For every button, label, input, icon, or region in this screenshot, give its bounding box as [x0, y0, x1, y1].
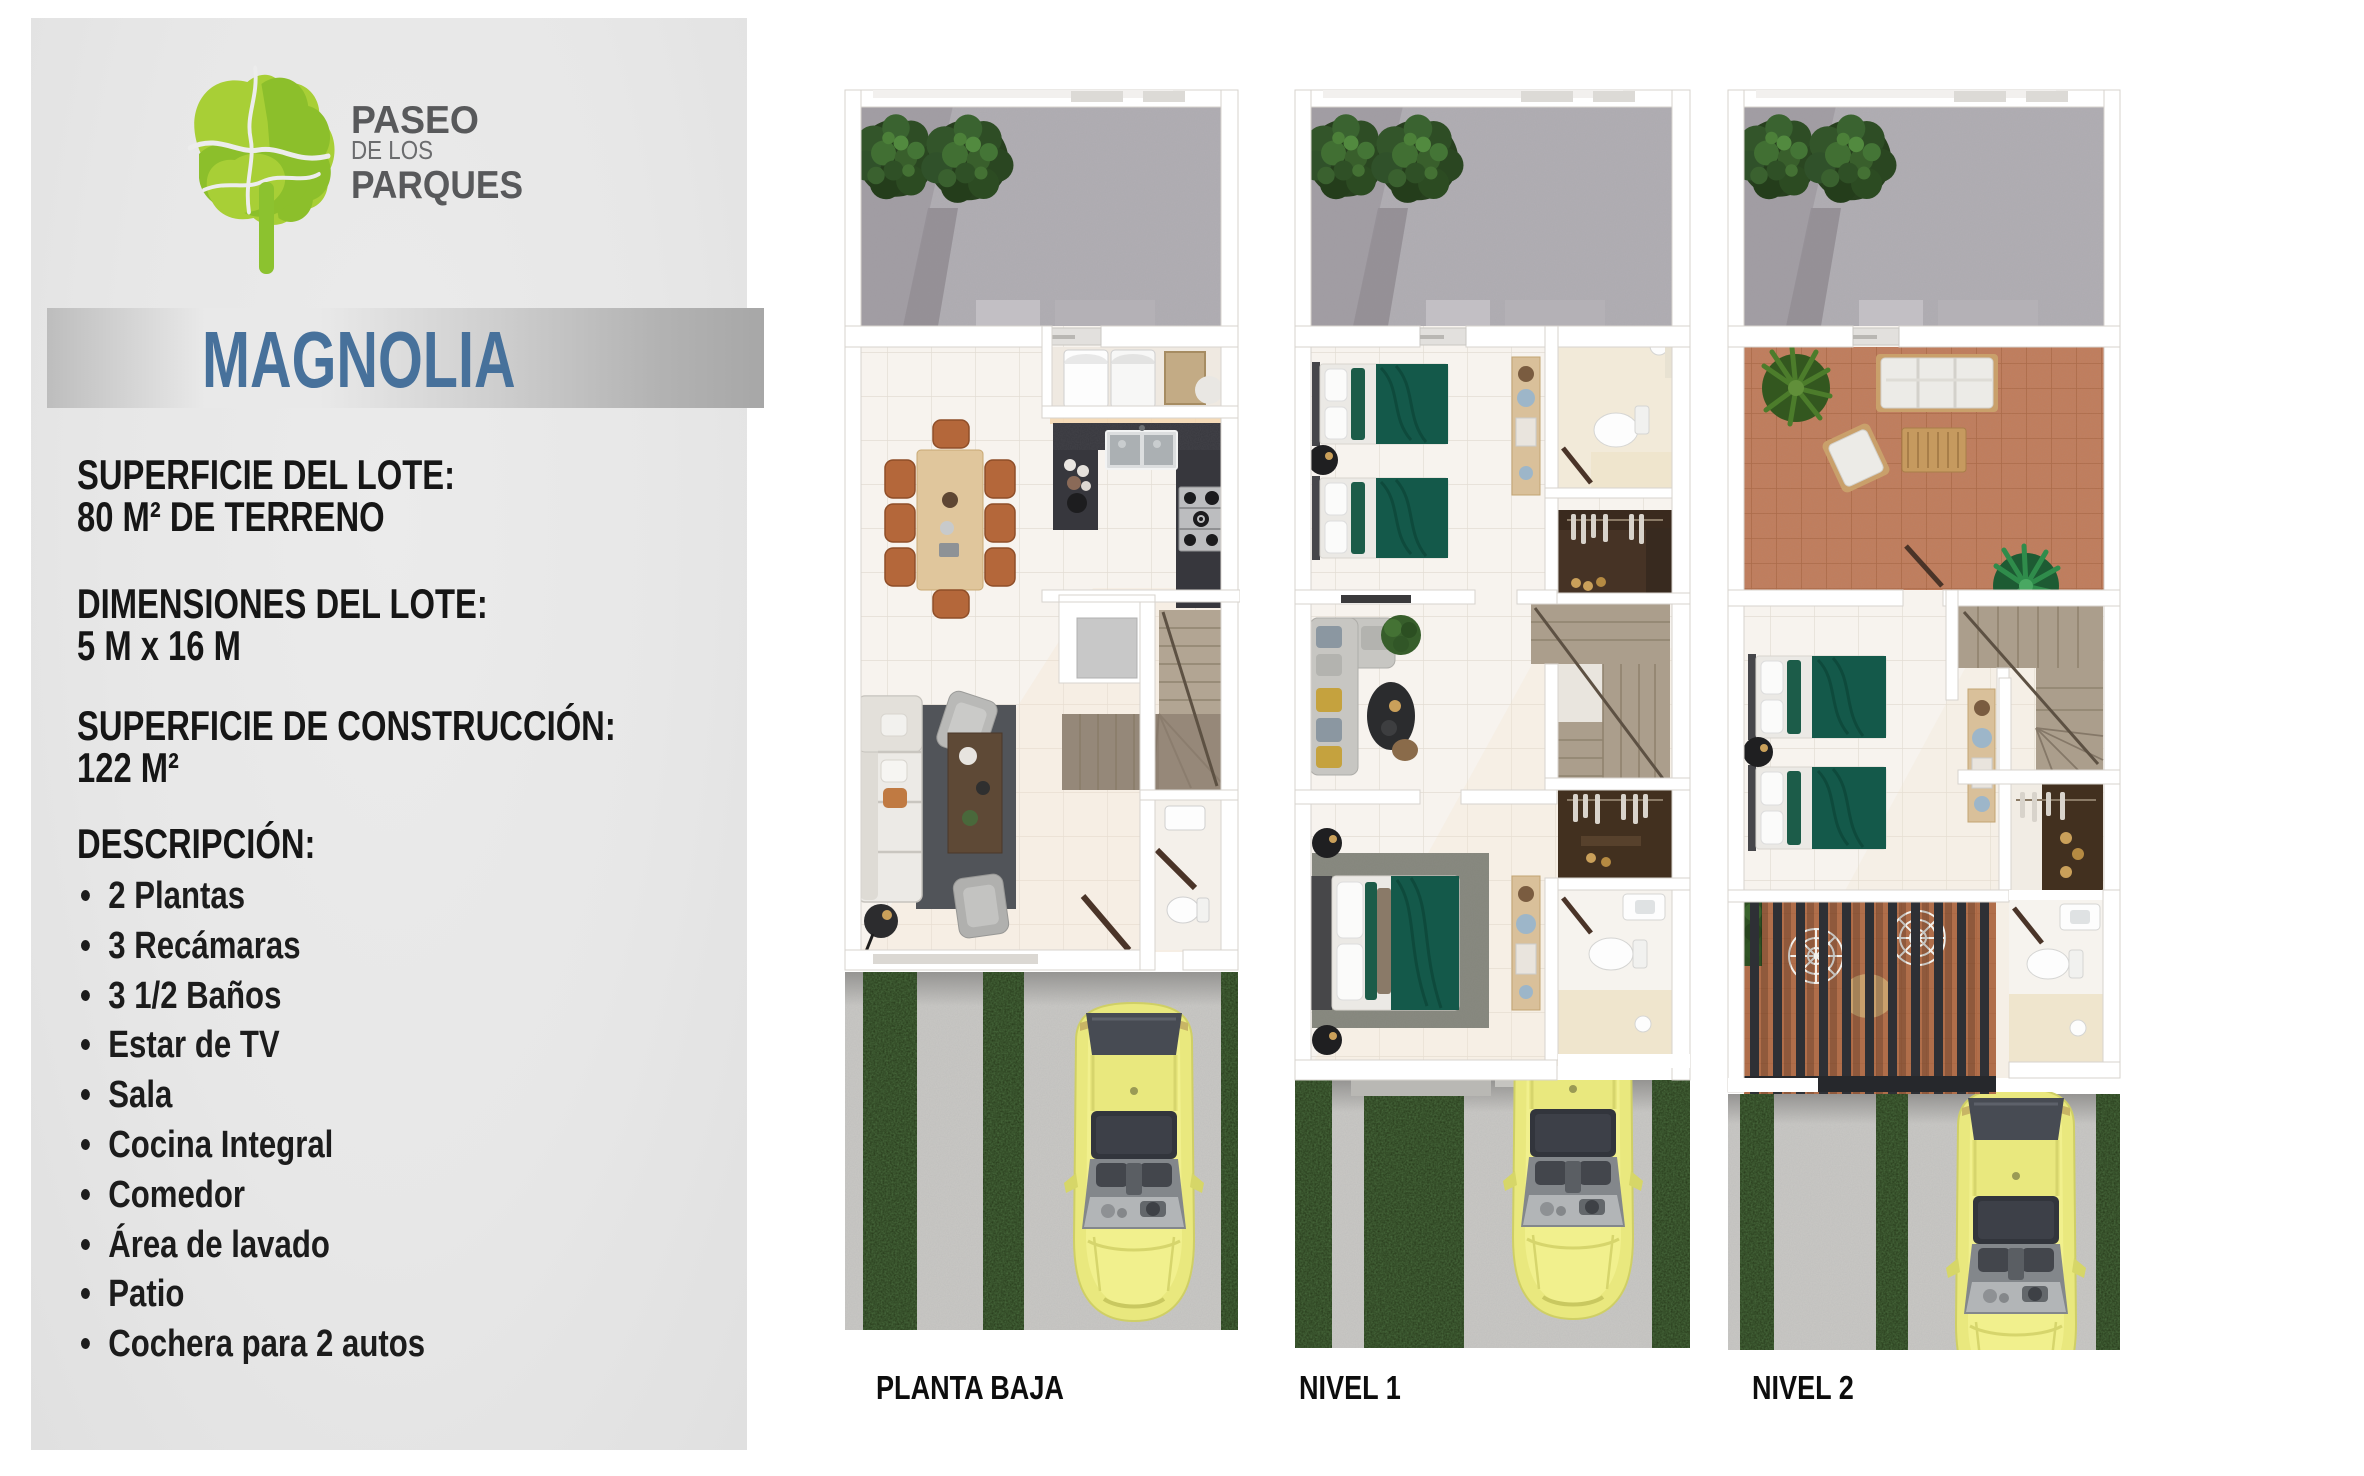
svg-text:DE LOS: DE LOS — [351, 135, 433, 165]
svg-text:PARQUES: PARQUES — [351, 164, 523, 207]
